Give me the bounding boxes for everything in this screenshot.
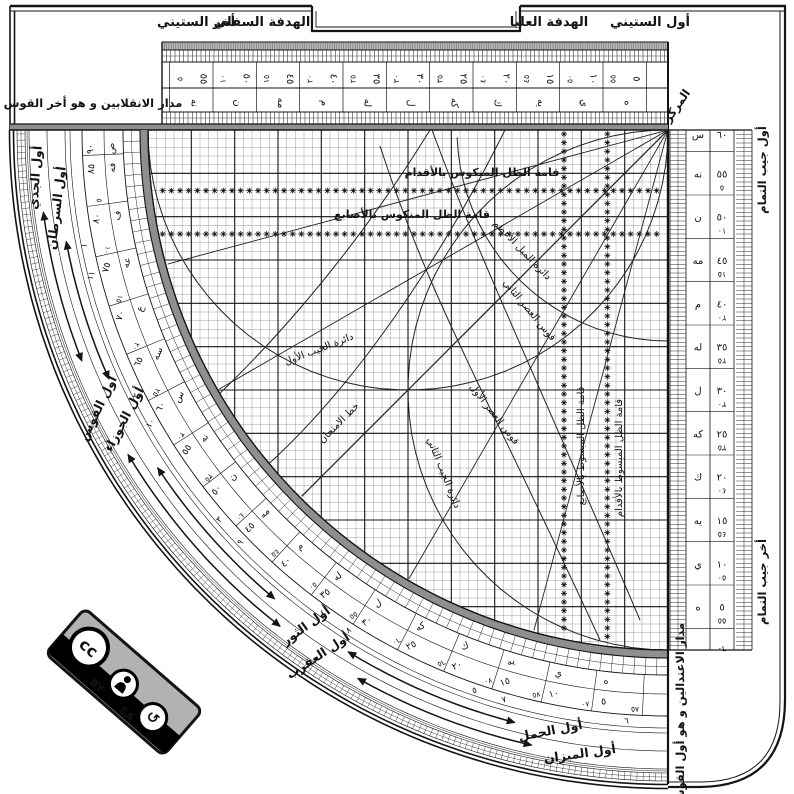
- cos-minor-numeral: ٣٥: [718, 443, 727, 452]
- cos-abjad-letter: ك: [694, 473, 702, 484]
- arc-minor-numeral: ٨٥: [631, 705, 640, 714]
- arc-abjad-letter: ف: [112, 210, 124, 222]
- ruler-abjad-letter: ل: [405, 99, 416, 106]
- ruler-minor-numeral: ٣٠: [392, 75, 401, 84]
- label-lower-sight: الهدفة السفلي: [214, 15, 311, 30]
- ruler-minor-numeral: ٥٠: [565, 75, 574, 84]
- ruler-major-numeral: ٤٠: [327, 74, 338, 85]
- cos-major-numeral: ٥٠: [717, 213, 728, 224]
- cos-minor-numeral: ٥: [720, 183, 724, 192]
- ruler-abjad-letter: كه: [448, 98, 459, 108]
- label-inverted-shadow-feet: قامة الظل المنكوس بالأقدام: [405, 165, 560, 179]
- ruler-abjad-letter: له: [362, 99, 373, 107]
- ruler-major-numeral: ٥٠: [241, 74, 252, 85]
- label-start-of-sixty: أول الستيني: [610, 13, 690, 30]
- arc-abjad-letter: ص: [106, 142, 117, 154]
- ruler-minor-numeral: ٥: [175, 77, 184, 81]
- ruler-minor-numeral: ١٠: [219, 75, 228, 84]
- ruler-abjad-letter: نه: [188, 99, 199, 107]
- ruler-major-numeral: ٥: [631, 76, 642, 81]
- arc-major-numeral: ٩٠: [85, 144, 96, 155]
- label-flat-shadow-feet: قامة الظل المبسوط بالأقدام: [612, 399, 625, 517]
- cos-abjad-letter: نه: [694, 169, 702, 180]
- ruler-abjad-letter: يه: [535, 99, 546, 107]
- cos-abjad-letter: ه: [695, 603, 700, 614]
- cos-major-numeral: ٤٠: [717, 299, 728, 310]
- ruler-major-numeral: ٢٥: [457, 74, 468, 85]
- ruler-major-numeral: ١٠: [587, 74, 598, 85]
- ruler-minor-numeral: ٢٥: [349, 75, 358, 84]
- cos-minor-numeral: ٥٥: [718, 617, 727, 626]
- cos-minor-numeral: ٥٠: [718, 573, 727, 582]
- cos-major-numeral: ١٠: [717, 559, 728, 570]
- cos-minor-numeral: ١٠: [718, 227, 727, 236]
- label-inverted-shadow-digits: قامة الظل المنكوس بالأصابع: [334, 207, 490, 221]
- ruler-minor-numeral: ٢٠: [305, 75, 314, 84]
- ruler-minor-numeral: ١٥: [262, 75, 271, 84]
- ruler-abjad-letter: ك: [492, 99, 503, 107]
- arc-major-numeral: ٨٥: [86, 164, 98, 175]
- label-cosine-end: أخر جيب التمام: [754, 539, 769, 625]
- page: أخر الستينيالهدفة السفليالهدفة العلياأول…: [0, 0, 794, 794]
- cos-abjad-letter: ي: [694, 559, 702, 570]
- cos-minor-numeral: ٢٠: [718, 313, 727, 322]
- cos-abjad-letter: ن: [694, 213, 701, 224]
- cos-major-numeral: ٢٠: [717, 473, 728, 484]
- cos-abjad-letter: له: [694, 343, 702, 354]
- cos-major-numeral: ١٥: [717, 516, 728, 527]
- ruler-minor-numeral: ٤٠: [479, 75, 488, 84]
- ruler-major-numeral: ٣٠: [414, 74, 425, 85]
- ruler-abjad-letter: ي: [578, 99, 589, 107]
- ruler-abjad-letter: ن: [232, 99, 243, 106]
- cos-minor-numeral: ١٥: [718, 270, 727, 279]
- ruler-abjad-letter: م: [318, 100, 329, 106]
- label-flat-shadow-digits: قامة الظل المبسوط بالأصابع: [574, 386, 587, 505]
- ruler-major-numeral: ٥٥: [197, 74, 208, 85]
- cos-major-numeral: ٣٠: [717, 386, 728, 397]
- label-upper-sight: الهدفة العليا: [510, 15, 589, 30]
- cos-abjad-letter: ل: [694, 386, 701, 397]
- ruler-major-numeral: ١٥: [544, 74, 555, 85]
- cos-major-numeral: ٣٥: [717, 343, 728, 354]
- arc-minor-numeral: ٨٠: [581, 699, 590, 709]
- ruler-minor-numeral: ٥٥: [609, 75, 618, 84]
- cos-minor-numeral: ٤٥: [718, 530, 727, 539]
- label-solstice-line: مدار الانقلابين و هو أخر القوس: [4, 95, 183, 111]
- cos-major-numeral: ٤٥: [717, 256, 728, 267]
- label-cosine-start: أول جيب التمام: [754, 126, 770, 214]
- cos-abjad-letter: م: [695, 299, 701, 310]
- ruler-minor-numeral: ٣٥: [435, 75, 444, 84]
- cos-minor-numeral: ٣٠: [718, 400, 727, 409]
- arc-abjad-letter: فه: [107, 162, 119, 172]
- cos-abjad-letter: مه: [693, 256, 704, 267]
- sine-quadrant-diagram: أخر الستينيالهدفة السفليالهدفة العلياأول…: [0, 0, 794, 794]
- ruler-abjad-letter: ه: [622, 100, 633, 105]
- cos-major-numeral: ٥٥: [717, 169, 728, 180]
- cos-abjad-letter: كه: [693, 429, 703, 440]
- ruler-major-numeral: ٢٠: [501, 74, 512, 85]
- cos-major-numeral: ٢٥: [717, 429, 728, 440]
- ruler-major-numeral: ٤٥: [284, 74, 295, 85]
- cos-abjad-letter: يه: [694, 516, 702, 527]
- cos-abjad-letter: س: [692, 130, 704, 141]
- arc-major-numeral: ١٠: [548, 688, 560, 701]
- cos-minor-numeral: ٦٠: [718, 644, 727, 653]
- cos-minor-numeral: ٤٠: [718, 487, 727, 496]
- cos-minor-numeral: ٢٥: [718, 357, 727, 366]
- cos-major-numeral: ٦٠: [717, 130, 728, 141]
- cos-major-numeral: ٥: [719, 603, 724, 614]
- label-equinox-line: مدار الاعتدالين و هو أول القوس: [672, 623, 688, 794]
- arc-major-numeral: ٨٠: [91, 213, 103, 225]
- ruler-major-numeral: ٣٥: [371, 74, 382, 85]
- ruler-minor-numeral: ٤٥: [522, 75, 531, 84]
- ruler-abjad-letter: مه: [275, 98, 286, 109]
